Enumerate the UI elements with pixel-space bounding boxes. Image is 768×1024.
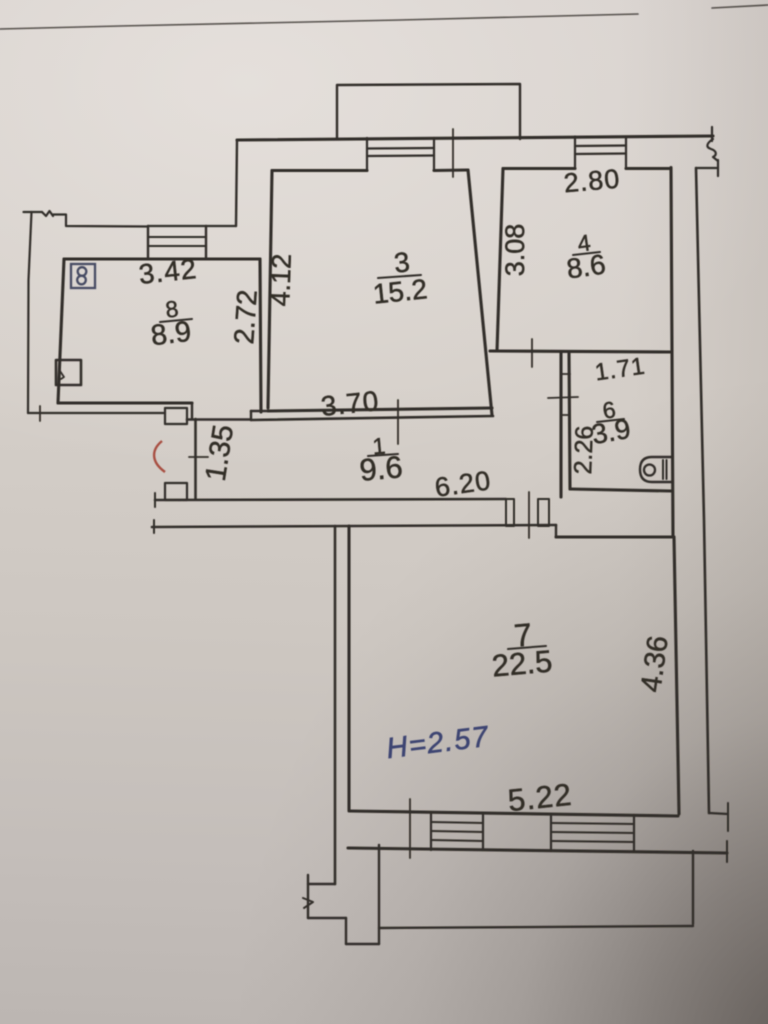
svg-text:2.26: 2.26 <box>569 425 599 475</box>
svg-text:15.2: 15.2 <box>371 273 428 310</box>
svg-text:4.36: 4.36 <box>635 634 675 694</box>
svg-text:22.5: 22.5 <box>490 643 553 683</box>
svg-text:9.6: 9.6 <box>358 449 404 488</box>
svg-text:3: 3 <box>393 246 412 278</box>
svg-text:2.80: 2.80 <box>563 164 622 199</box>
svg-text:1.35: 1.35 <box>200 423 240 484</box>
svg-text:1.71: 1.71 <box>593 353 647 387</box>
svg-text:3.42: 3.42 <box>137 253 198 290</box>
svg-text:4.12: 4.12 <box>265 253 297 307</box>
svg-text:3.08: 3.08 <box>500 224 530 277</box>
svg-text:8.6: 8.6 <box>565 248 608 284</box>
svg-text:6.20: 6.20 <box>433 465 493 503</box>
svg-text:2.72: 2.72 <box>228 289 263 346</box>
svg-text:5.22: 5.22 <box>506 777 574 819</box>
svg-text:8.9: 8.9 <box>149 316 193 353</box>
svg-text:3.70: 3.70 <box>319 385 380 422</box>
svg-text:H=2.57: H=2.57 <box>385 721 492 765</box>
